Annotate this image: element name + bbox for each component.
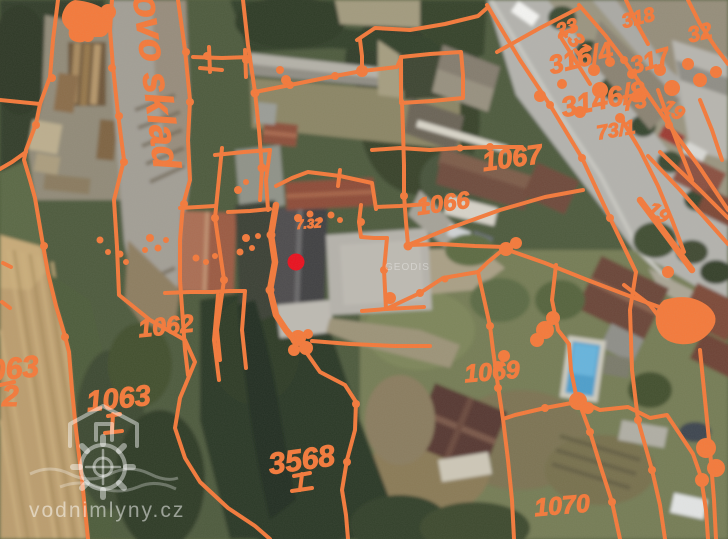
svg-text:GEODIS: GEODIS xyxy=(385,262,430,273)
svg-text:vodnimlyny.cz: vodnimlyny.cz xyxy=(29,499,185,522)
